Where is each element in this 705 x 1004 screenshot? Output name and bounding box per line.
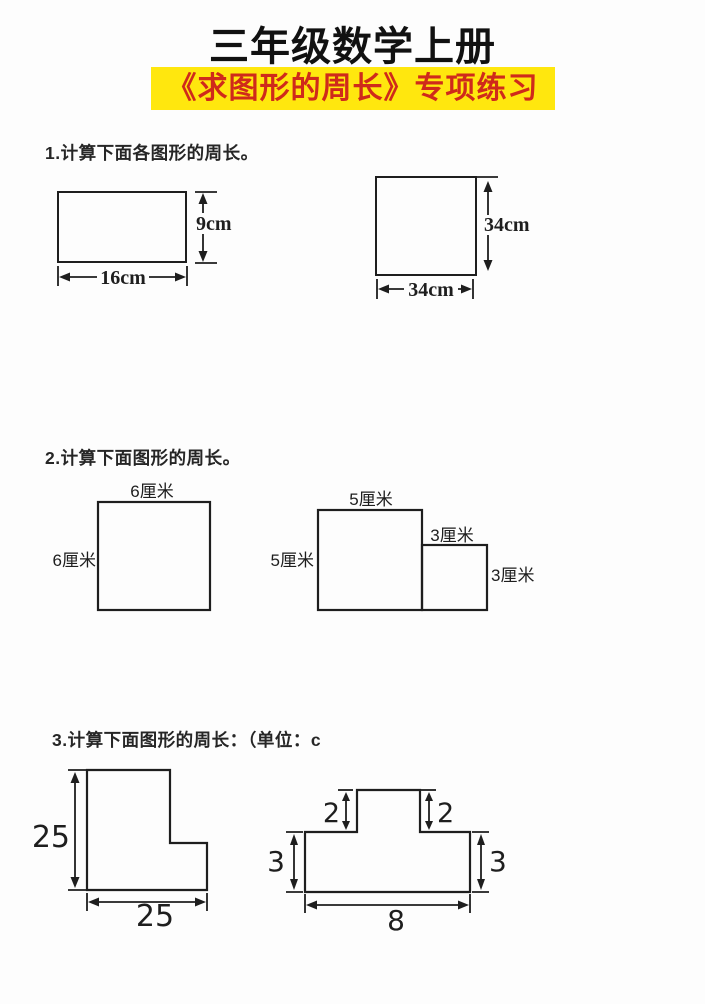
arrow-right-icon [461,285,472,294]
arrow-up-icon [477,834,485,845]
arrow-up-icon [71,772,80,783]
dim-label-3cm-right: 3厘米 [491,566,534,585]
arrow-right-icon [458,901,469,910]
figure-l-shape-25: 25 25 [32,770,207,934]
dim-label-34cm-v: 34cm [484,214,530,236]
dim-label-9cm: 9cm [196,213,232,235]
dim-label-3-right: 3 [489,845,507,878]
arrow-down-icon [425,821,433,830]
dim-label-16cm: 16cm [100,267,146,289]
arrow-right-icon [195,898,206,907]
dim-label-3cm-top: 3厘米 [430,526,473,545]
figure-square-6: 6厘米 6厘米 [53,482,210,610]
arrow-down-icon [71,877,80,888]
l-shape-outline [87,770,207,890]
dim-label-25-bottom: 25 [136,899,174,934]
composite-big-square-shape [318,510,422,610]
arrow-left-icon [88,898,99,907]
square-6-shape [98,502,210,610]
arrow-down-icon [477,879,485,890]
rect-16x9-shape [58,192,186,262]
arrow-left-icon [306,901,317,910]
dim-label-6cm-left: 6厘米 [53,551,96,570]
arrow-down-icon [290,879,298,890]
composite-small-square-shape [422,545,487,610]
figure-square-34: 34cm 34cm [376,177,530,301]
figure-t-shape: 2 2 3 3 8 [267,790,507,937]
square-34-shape [376,177,476,275]
arrow-up-icon [484,181,493,192]
arrow-up-icon [199,193,208,204]
dim-label-8: 8 [387,904,405,937]
dim-label-3-left: 3 [267,845,285,878]
arrow-left-icon [378,285,389,294]
worksheet-page: 三年级数学上册 《求图形的周长》专项练习 1.计算下面各图形的周长。 2.计算下… [0,0,705,1004]
dim-label-5cm-top: 5厘米 [349,490,392,509]
arrow-up-icon [425,792,433,801]
dim-label-34cm-h: 34cm [408,279,454,301]
dim-label-6cm-top: 6厘米 [130,482,173,501]
arrow-up-icon [290,834,298,845]
dim-label-2-right: 2 [437,798,454,829]
arrow-down-icon [342,821,350,830]
arrow-down-icon [199,251,208,262]
dim-label-25-left: 25 [32,820,70,855]
arrow-down-icon [484,260,493,271]
dim-label-5cm-left: 5厘米 [271,551,314,570]
dim-label-2-left: 2 [323,798,340,829]
figures-canvas: 9cm 16cm 34cm 34cm [0,0,705,1004]
figure-composite-5-3: 5厘米 5厘米 3厘米 3厘米 [271,490,535,610]
arrow-up-icon [342,792,350,801]
arrow-right-icon [175,273,186,282]
arrow-left-icon [59,273,70,282]
figure-rect-16x9: 9cm 16cm [58,192,237,289]
